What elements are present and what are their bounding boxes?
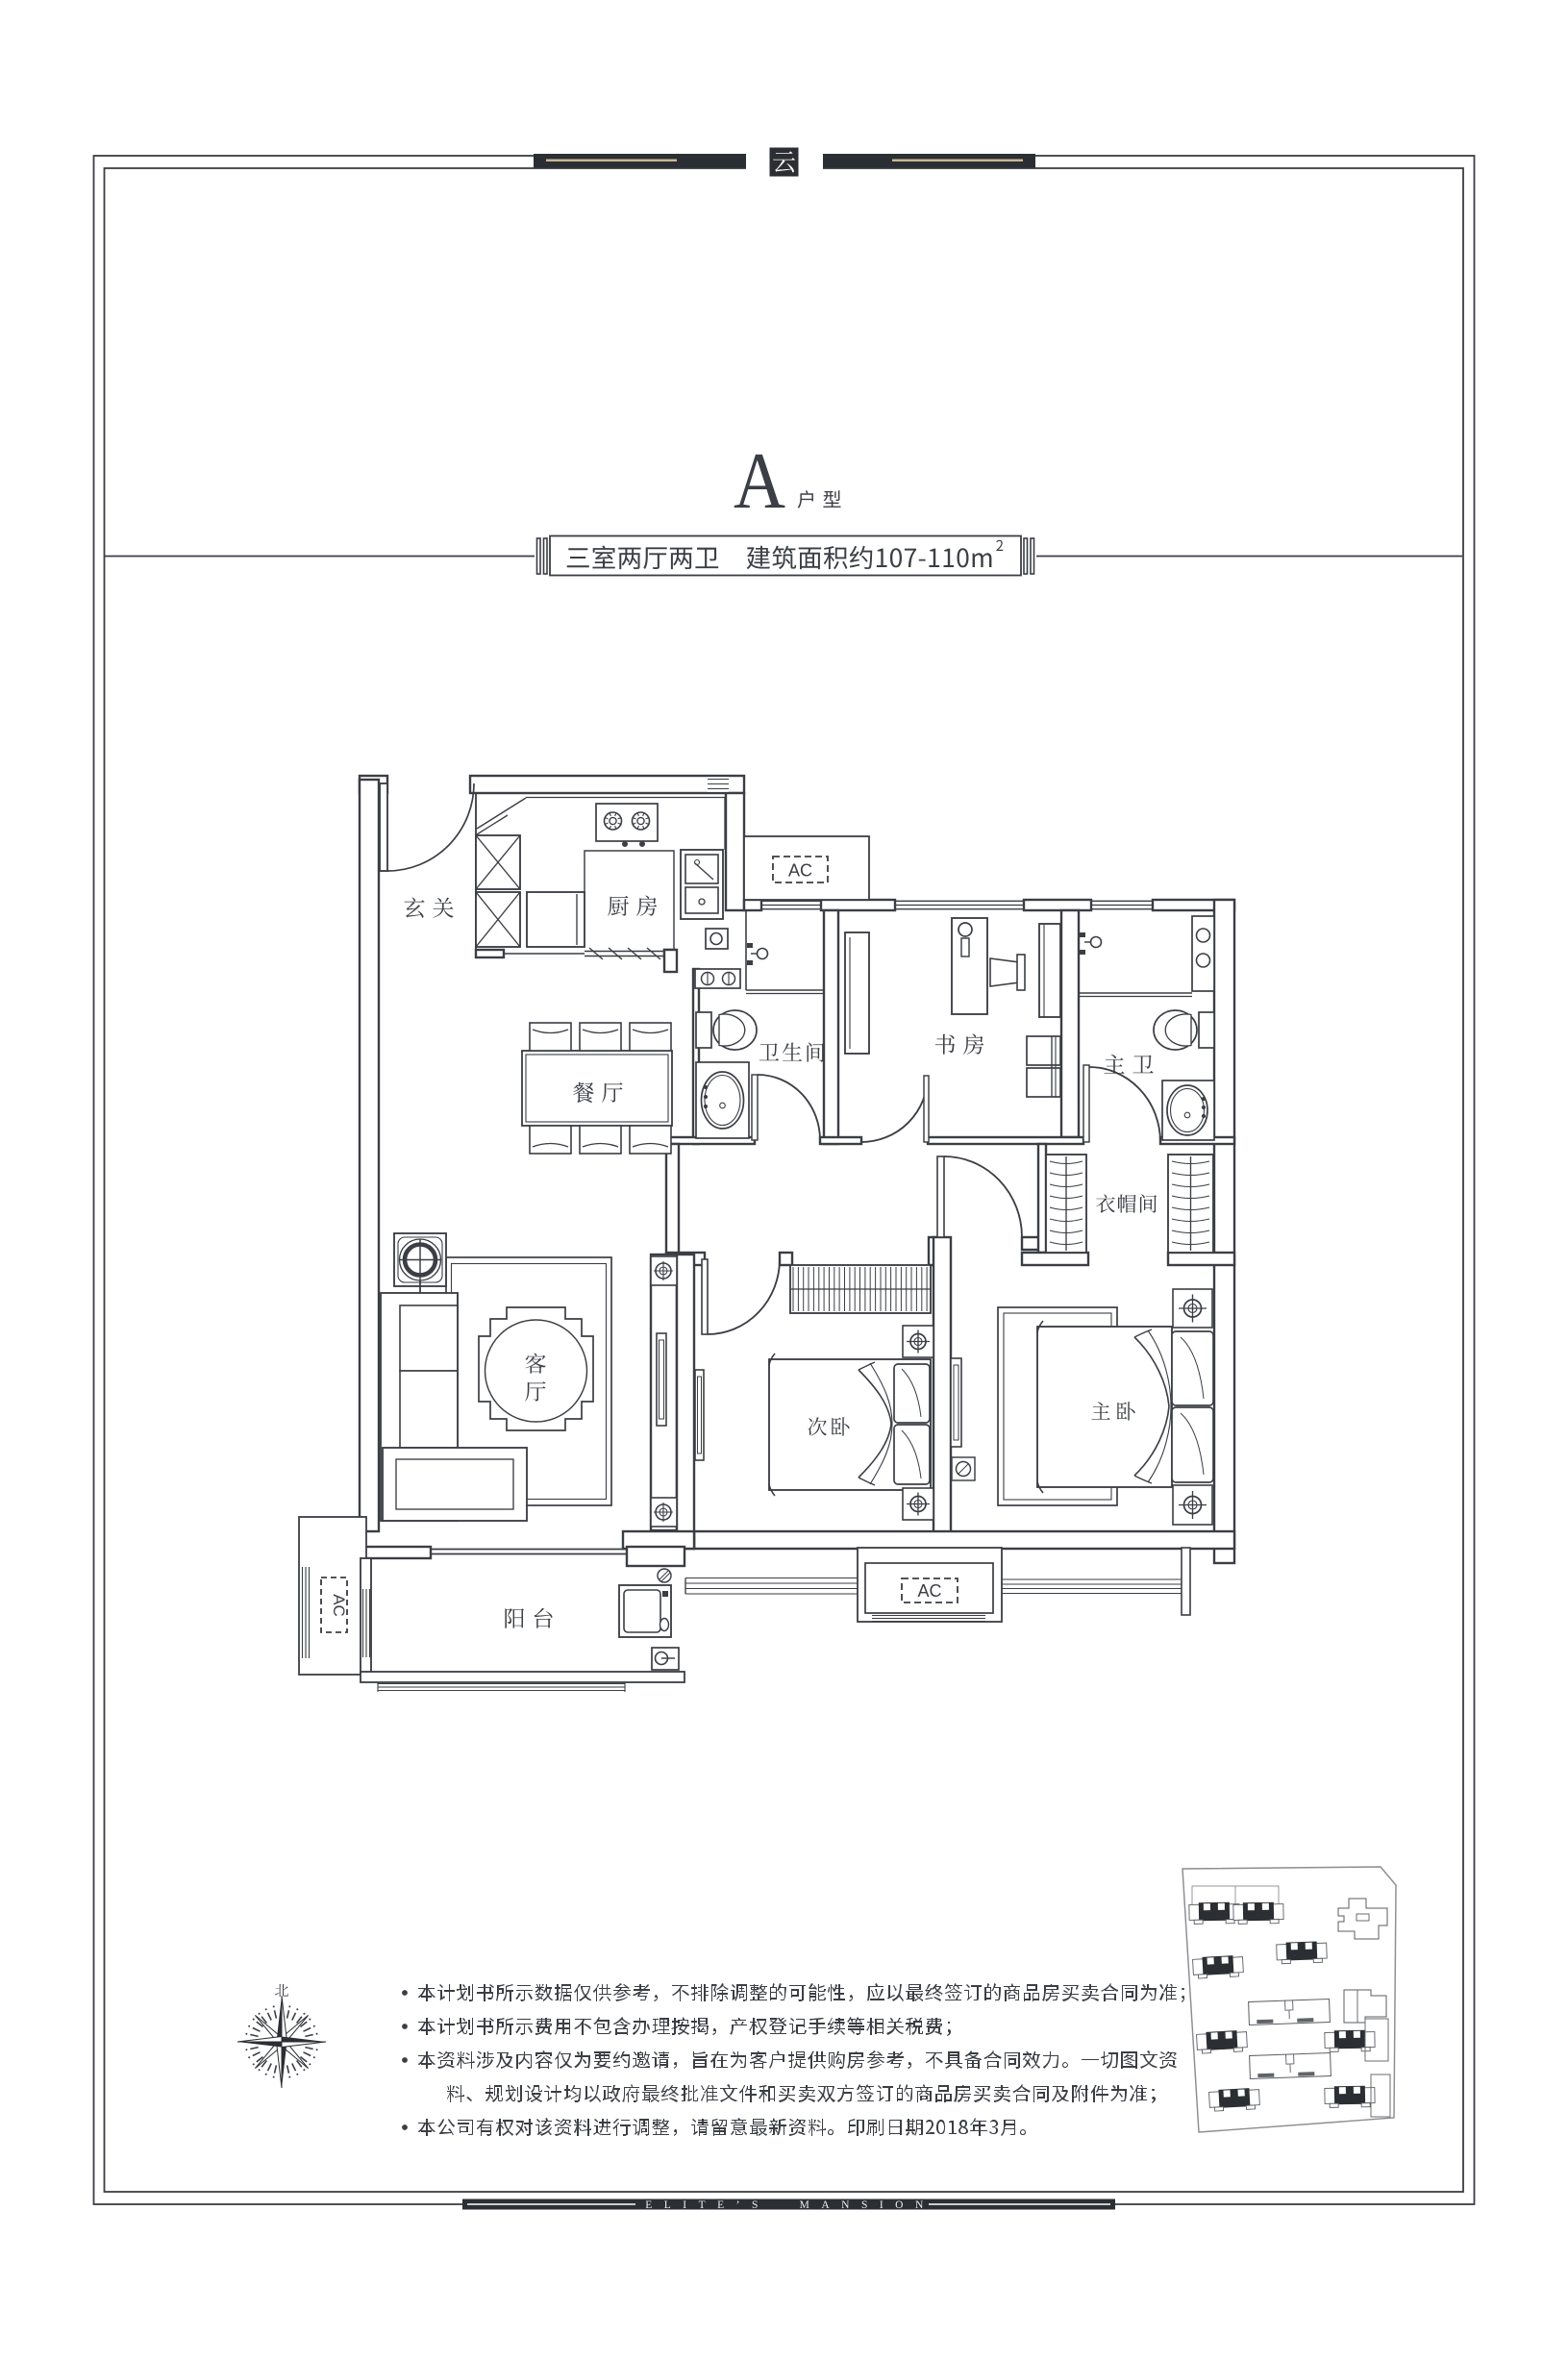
svg-text:AC: AC [788,861,812,881]
svg-text:A: A [734,436,785,526]
svg-text:ELITE’S MANSION: ELITE’S MANSION [645,2199,935,2211]
svg-text:AC: AC [917,1581,941,1601]
svg-text:AC: AC [330,1594,348,1617]
